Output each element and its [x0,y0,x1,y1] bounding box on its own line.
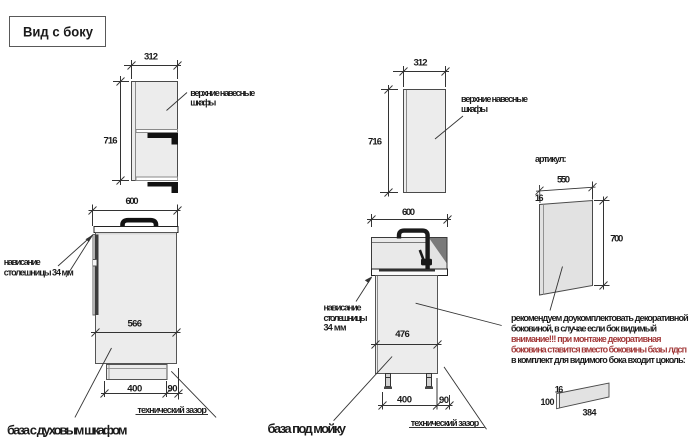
svg-text:в комплект для видимого бока в: в комплект для видимого бока входит цоко… [511,355,686,365]
svg-text:566: 566 [128,319,143,330]
svg-text:600: 600 [126,196,139,207]
svg-text:база с духовым шкафом: база с духовым шкафом [7,423,128,438]
svg-text:16: 16 [535,193,544,203]
svg-text:312: 312 [144,52,158,63]
svg-text:476: 476 [395,329,410,340]
svg-text:рекомендуем доукомплектовать д: рекомендуем доукомплектовать декоративно… [511,313,689,323]
svg-text:шкафы: шкафы [461,104,488,114]
svg-text:нависание: нависание [324,303,362,313]
svg-text:550: 550 [557,175,570,186]
svg-text:боковина ставится вместо боков: боковина ставится вместо боковины базы л… [511,344,687,354]
svg-text:верхние навесные: верхние навесные [190,88,255,98]
svg-text:артикул:: артикул: [535,154,567,164]
svg-text:технический зазор: технический зазор [411,418,480,428]
svg-text:716: 716 [104,136,118,147]
svg-text:384: 384 [583,408,597,418]
svg-text:шкафы: шкафы [190,98,216,108]
svg-text:312: 312 [414,58,428,69]
svg-text:716: 716 [368,137,382,148]
svg-text:внимание!!! при монтаже декора: внимание!!! при монтаже декоративная [511,334,662,344]
svg-text:база под мойку: база под мойку [268,421,347,436]
svg-text:34 мм: 34 мм [324,323,347,333]
svg-text:90: 90 [439,395,449,406]
svg-text:верхние навесные: верхние навесные [461,94,528,104]
svg-text:боковиной, в случае если бок в: боковиной, в случае если бок видимый [511,324,657,334]
svg-text:400: 400 [127,383,142,394]
svg-text:технический зазор: технический зазор [137,405,207,415]
svg-text:700: 700 [610,234,623,245]
svg-text:нависание: нависание [4,257,41,267]
svg-text:600: 600 [402,207,415,218]
svg-text:Вид с боку: Вид с боку [23,24,93,40]
svg-text:100: 100 [541,397,555,407]
svg-text:столешницы 34 мм: столешницы 34 мм [4,267,74,277]
svg-text:400: 400 [397,395,412,406]
svg-text:90: 90 [168,384,178,395]
svg-text:столешницы: столешницы [324,313,368,323]
